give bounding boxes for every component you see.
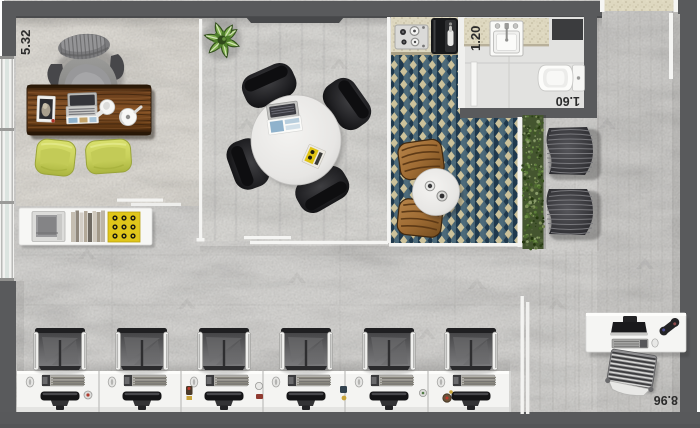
svg-text:8.96: 8.96	[654, 393, 678, 407]
svg-text:1.20: 1.20	[468, 26, 483, 51]
svg-text:1.60: 1.60	[556, 94, 580, 108]
svg-text:5.32: 5.32	[18, 30, 33, 55]
